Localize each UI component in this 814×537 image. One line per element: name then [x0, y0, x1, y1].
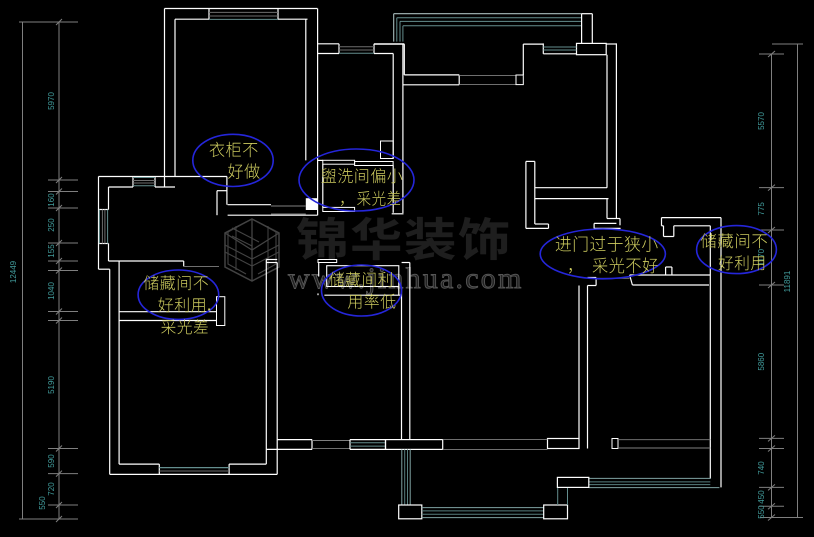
svg-text:5190: 5190: [47, 376, 56, 394]
svg-text:5860: 5860: [757, 352, 766, 370]
svg-text:720: 720: [47, 482, 56, 496]
svg-text:12449: 12449: [9, 260, 18, 283]
svg-text:550: 550: [38, 496, 47, 510]
svg-text:www.jinhua.com: www.jinhua.com: [288, 262, 523, 295]
svg-text:5570: 5570: [757, 112, 766, 130]
svg-text:250: 250: [47, 218, 56, 232]
svg-text:155: 155: [47, 244, 56, 258]
svg-text:5970: 5970: [47, 92, 56, 110]
svg-text:775: 775: [757, 202, 766, 216]
svg-text:450: 450: [757, 490, 766, 504]
svg-text:160: 160: [47, 193, 56, 207]
svg-text:1040: 1040: [47, 282, 56, 300]
svg-text:590: 590: [47, 454, 56, 468]
svg-text:550: 550: [757, 505, 766, 519]
svg-text:740: 740: [757, 461, 766, 475]
svg-text:11891: 11891: [783, 270, 792, 292]
